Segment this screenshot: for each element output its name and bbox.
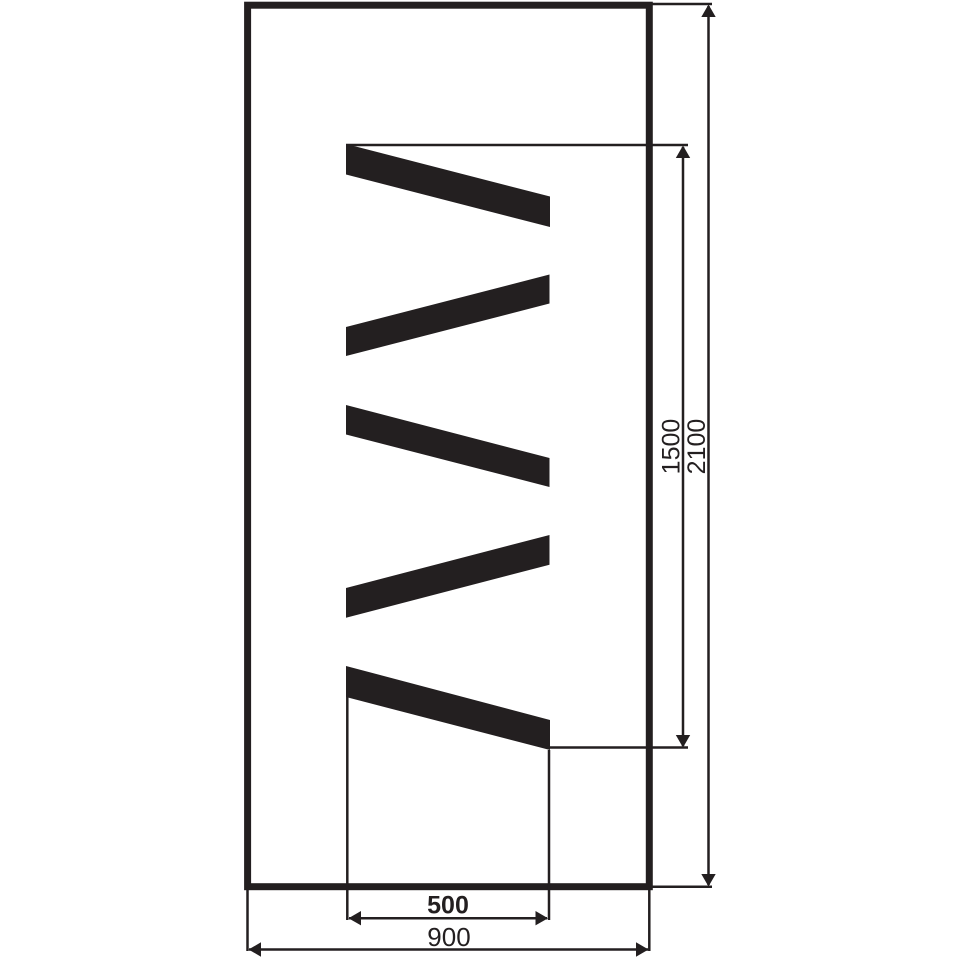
svg-text:500: 500 bbox=[427, 892, 469, 920]
svg-text:1500: 1500 bbox=[658, 419, 686, 475]
svg-text:900: 900 bbox=[427, 922, 470, 952]
svg-text:2100: 2100 bbox=[683, 419, 711, 475]
